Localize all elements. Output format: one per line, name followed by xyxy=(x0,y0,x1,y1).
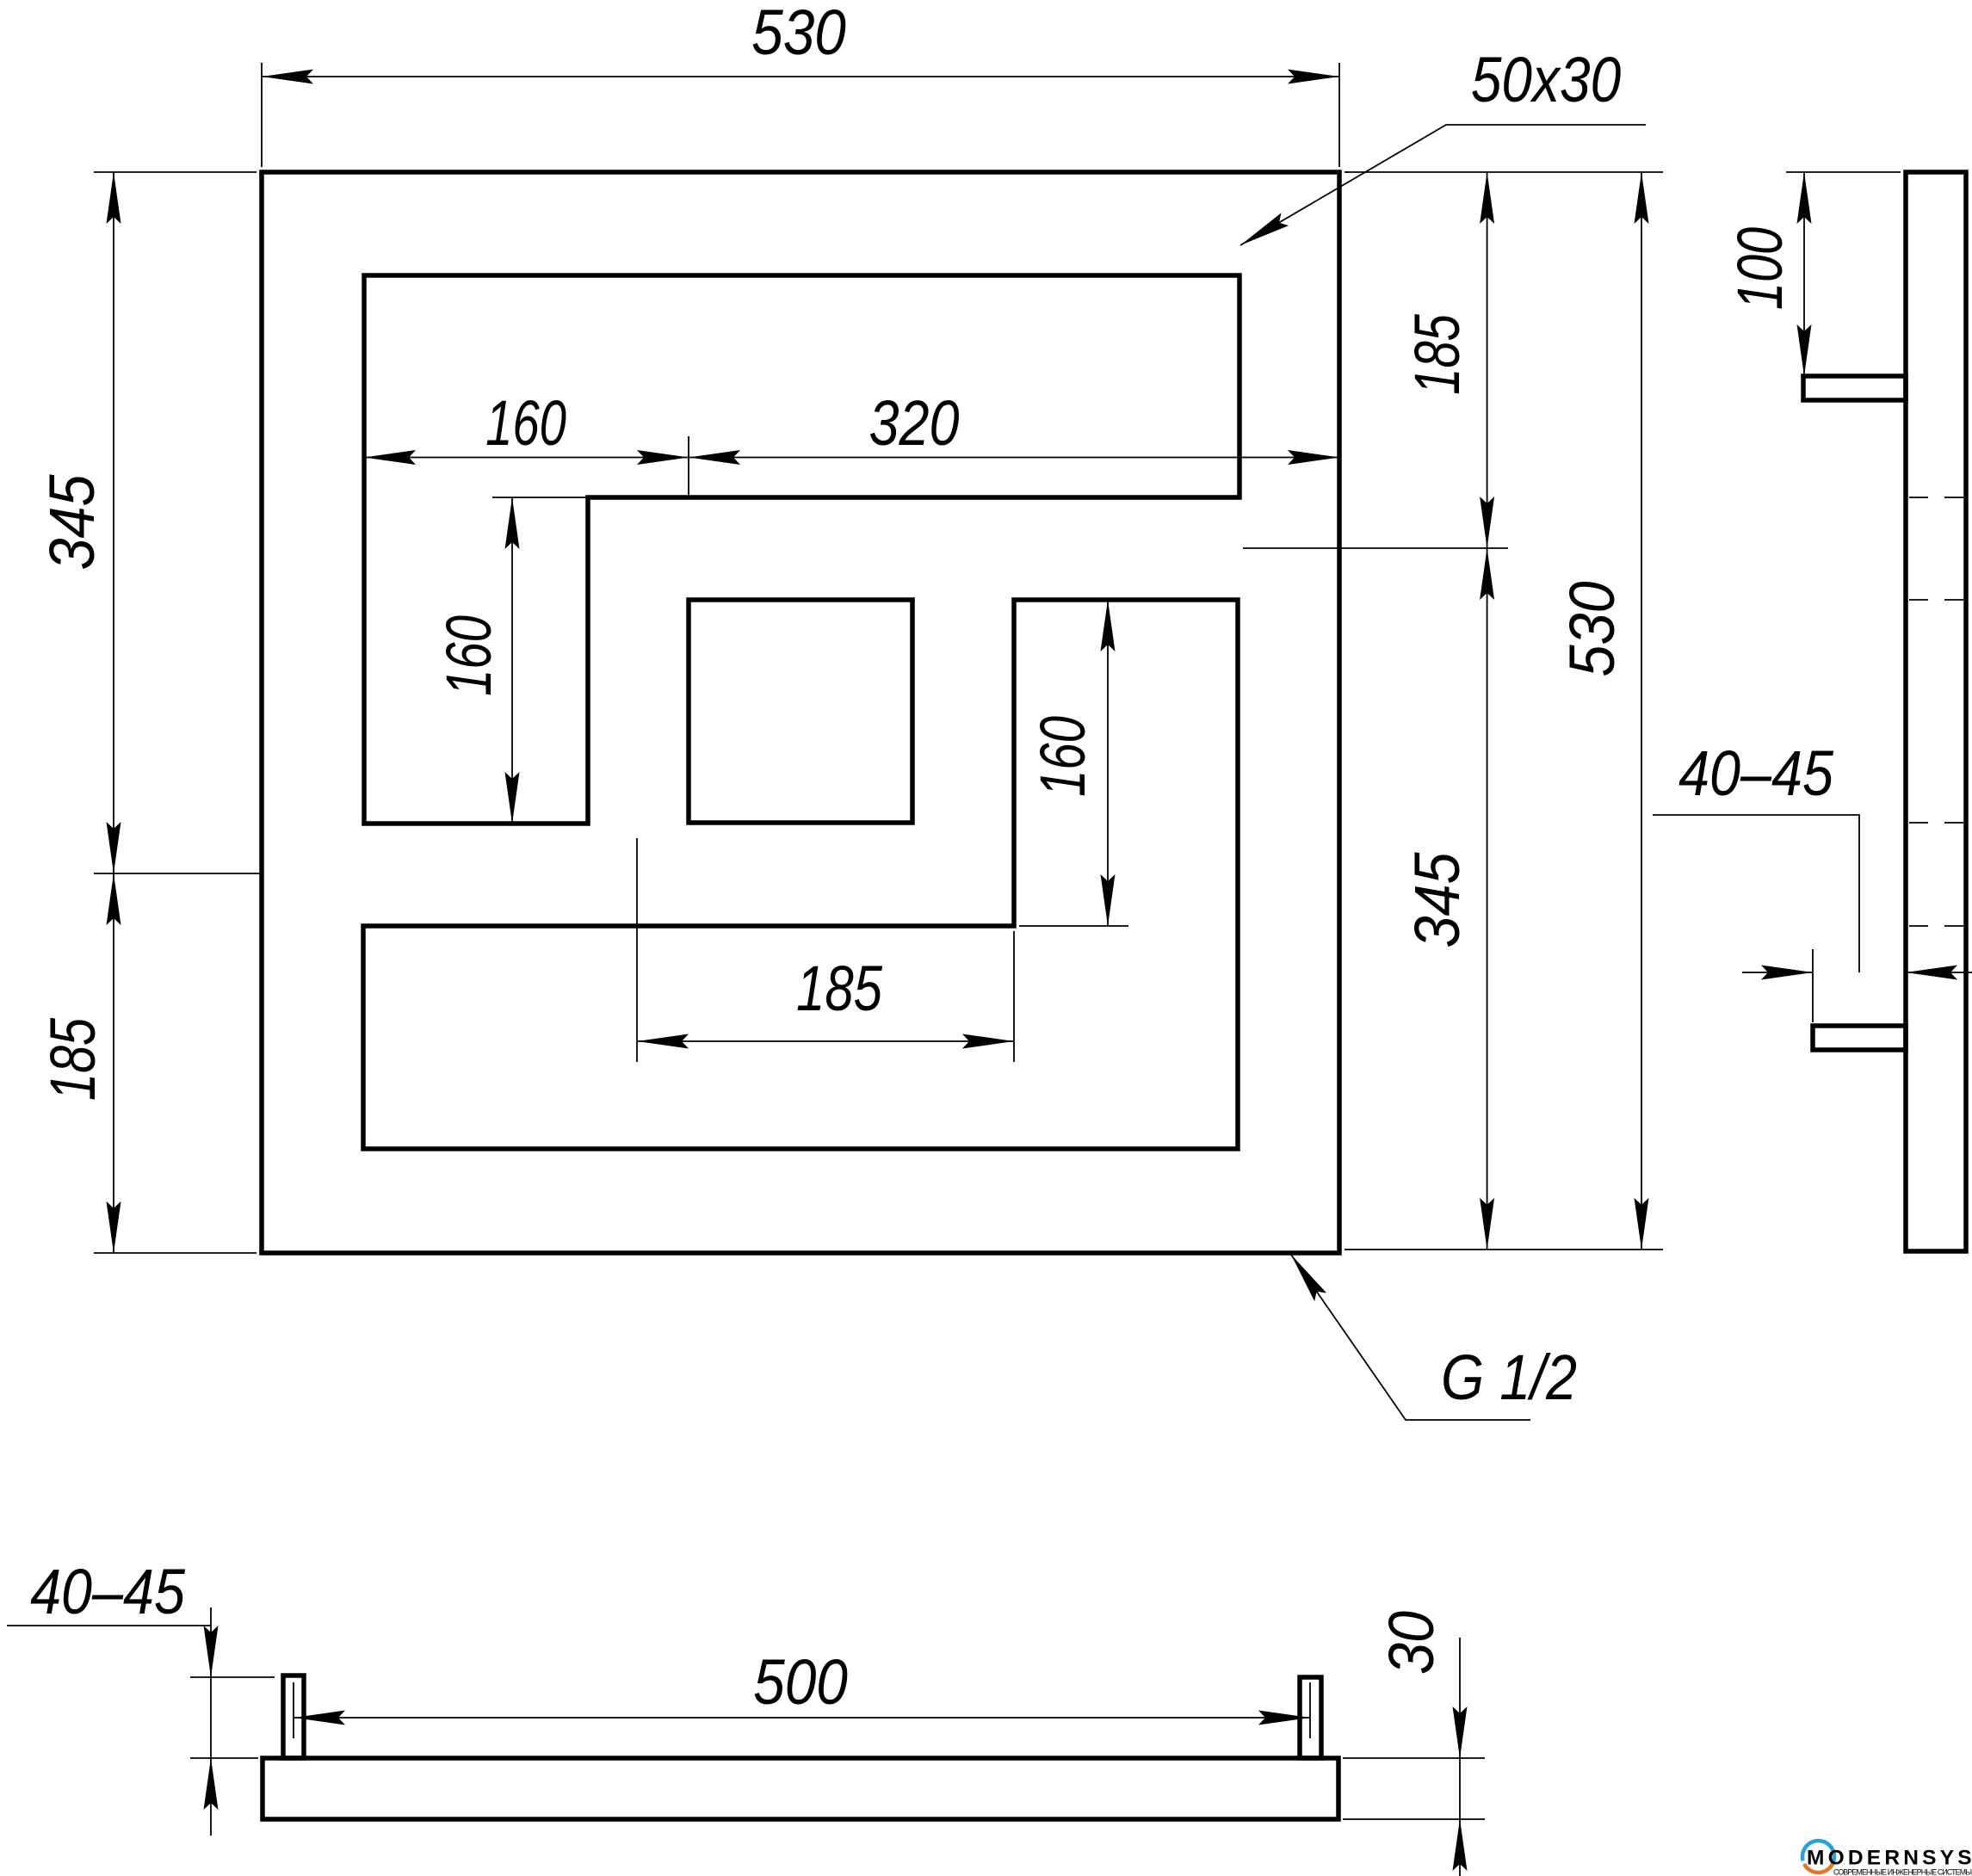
svg-text:СОВРЕМЕННЫЕ ИНЖЕНЕРНЫЕ СИСТЕМЫ: СОВРЕМЕННЫЕ ИНЖЕНЕРНЫЕ СИСТЕМЫ xyxy=(1833,1868,1972,1876)
svg-text:MODERNSYS: MODERNSYS xyxy=(1807,1847,1972,1870)
svg-text:185: 185 xyxy=(38,1017,109,1101)
svg-text:100: 100 xyxy=(1725,227,1796,310)
svg-text:530: 530 xyxy=(1556,581,1628,676)
svg-text:345: 345 xyxy=(1401,852,1473,948)
svg-text:40–45: 40–45 xyxy=(30,1556,185,1627)
svg-text:185: 185 xyxy=(796,953,882,1024)
svg-text:500: 500 xyxy=(753,1646,848,1717)
svg-text:40–45: 40–45 xyxy=(1678,737,1833,809)
svg-text:345: 345 xyxy=(36,474,108,571)
svg-text:185: 185 xyxy=(1402,314,1473,395)
svg-text:160: 160 xyxy=(1028,716,1098,797)
svg-text:160: 160 xyxy=(485,388,566,459)
svg-text:160: 160 xyxy=(434,615,504,696)
svg-text:30: 30 xyxy=(1375,1611,1447,1675)
svg-text:50x30: 50x30 xyxy=(1471,44,1621,115)
svg-text:530: 530 xyxy=(751,0,846,68)
svg-text:320: 320 xyxy=(869,387,960,459)
svg-text:G 1/2: G 1/2 xyxy=(1441,1342,1577,1413)
